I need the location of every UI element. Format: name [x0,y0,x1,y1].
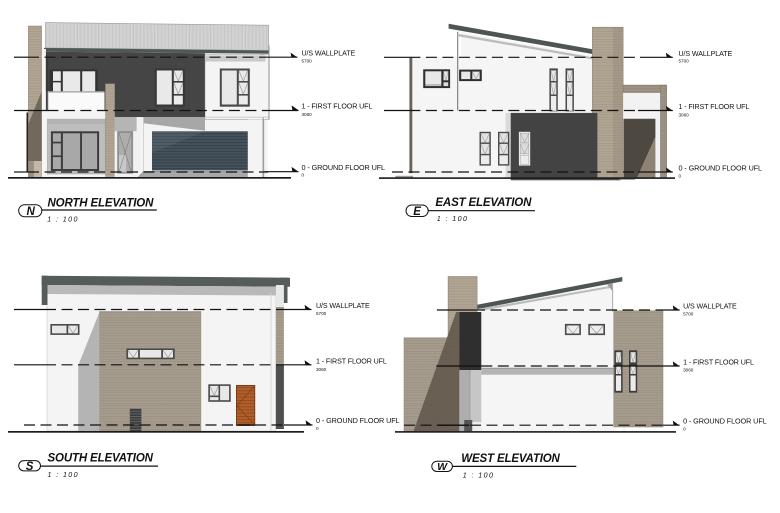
svg-text:5700: 5700 [316,311,327,316]
svg-text:1 - FIRST FLOOR UFL: 1 - FIRST FLOOR UFL [683,358,754,367]
svg-text:3060: 3060 [316,367,327,372]
svg-text:0 - GROUND FLOOR UFL: 0 - GROUND FLOOR UFL [679,164,763,173]
svg-text:S: S [26,461,34,473]
svg-text:1 : 100: 1 : 100 [47,215,79,223]
svg-text:U/S WALLPLATE: U/S WALLPLATE [679,49,733,58]
svg-text:NORTH ELEVATION: NORTH ELEVATION [48,197,155,209]
svg-text:U/S WALLPLATE: U/S WALLPLATE [683,302,737,311]
svg-text:E: E [413,206,421,218]
svg-text:1 : 100: 1 : 100 [437,215,469,223]
svg-text:SOUTH ELEVATION: SOUTH ELEVATION [48,453,154,465]
svg-text:0: 0 [316,426,319,431]
svg-text:1 - FIRST FLOOR UFL: 1 - FIRST FLOOR UFL [316,356,387,365]
svg-text:3060: 3060 [683,367,694,372]
svg-text:U/S WALLPLATE: U/S WALLPLATE [302,49,356,58]
svg-text:0 - GROUND FLOOR UFL: 0 - GROUND FLOOR UFL [683,417,767,426]
svg-text:1 : 100: 1 : 100 [463,472,495,480]
svg-text:5700: 5700 [679,59,690,64]
svg-text:N: N [26,206,35,218]
svg-text:EAST ELEVATION: EAST ELEVATION [435,197,532,209]
svg-text:1 - FIRST FLOOR UFL: 1 - FIRST FLOOR UFL [679,102,750,111]
svg-text:3060: 3060 [679,112,690,117]
svg-text:U/S WALLPLATE: U/S WALLPLATE [316,301,370,310]
svg-text:3060: 3060 [302,112,313,117]
svg-text:1 : 100: 1 : 100 [48,471,80,479]
svg-text:0 - GROUND FLOOR UFL: 0 - GROUND FLOOR UFL [302,163,386,172]
svg-text:W: W [437,461,448,473]
svg-text:0: 0 [679,173,682,178]
svg-text:0: 0 [683,427,686,432]
svg-text:0: 0 [302,172,305,177]
svg-text:5700: 5700 [302,59,313,64]
svg-text:1 - FIRST FLOOR UFL: 1 - FIRST FLOOR UFL [302,102,373,111]
svg-text:0 - GROUND FLOOR UFL: 0 - GROUND FLOOR UFL [316,416,400,425]
svg-text:5700: 5700 [683,311,694,316]
svg-text:WEST ELEVATION: WEST ELEVATION [461,453,560,465]
